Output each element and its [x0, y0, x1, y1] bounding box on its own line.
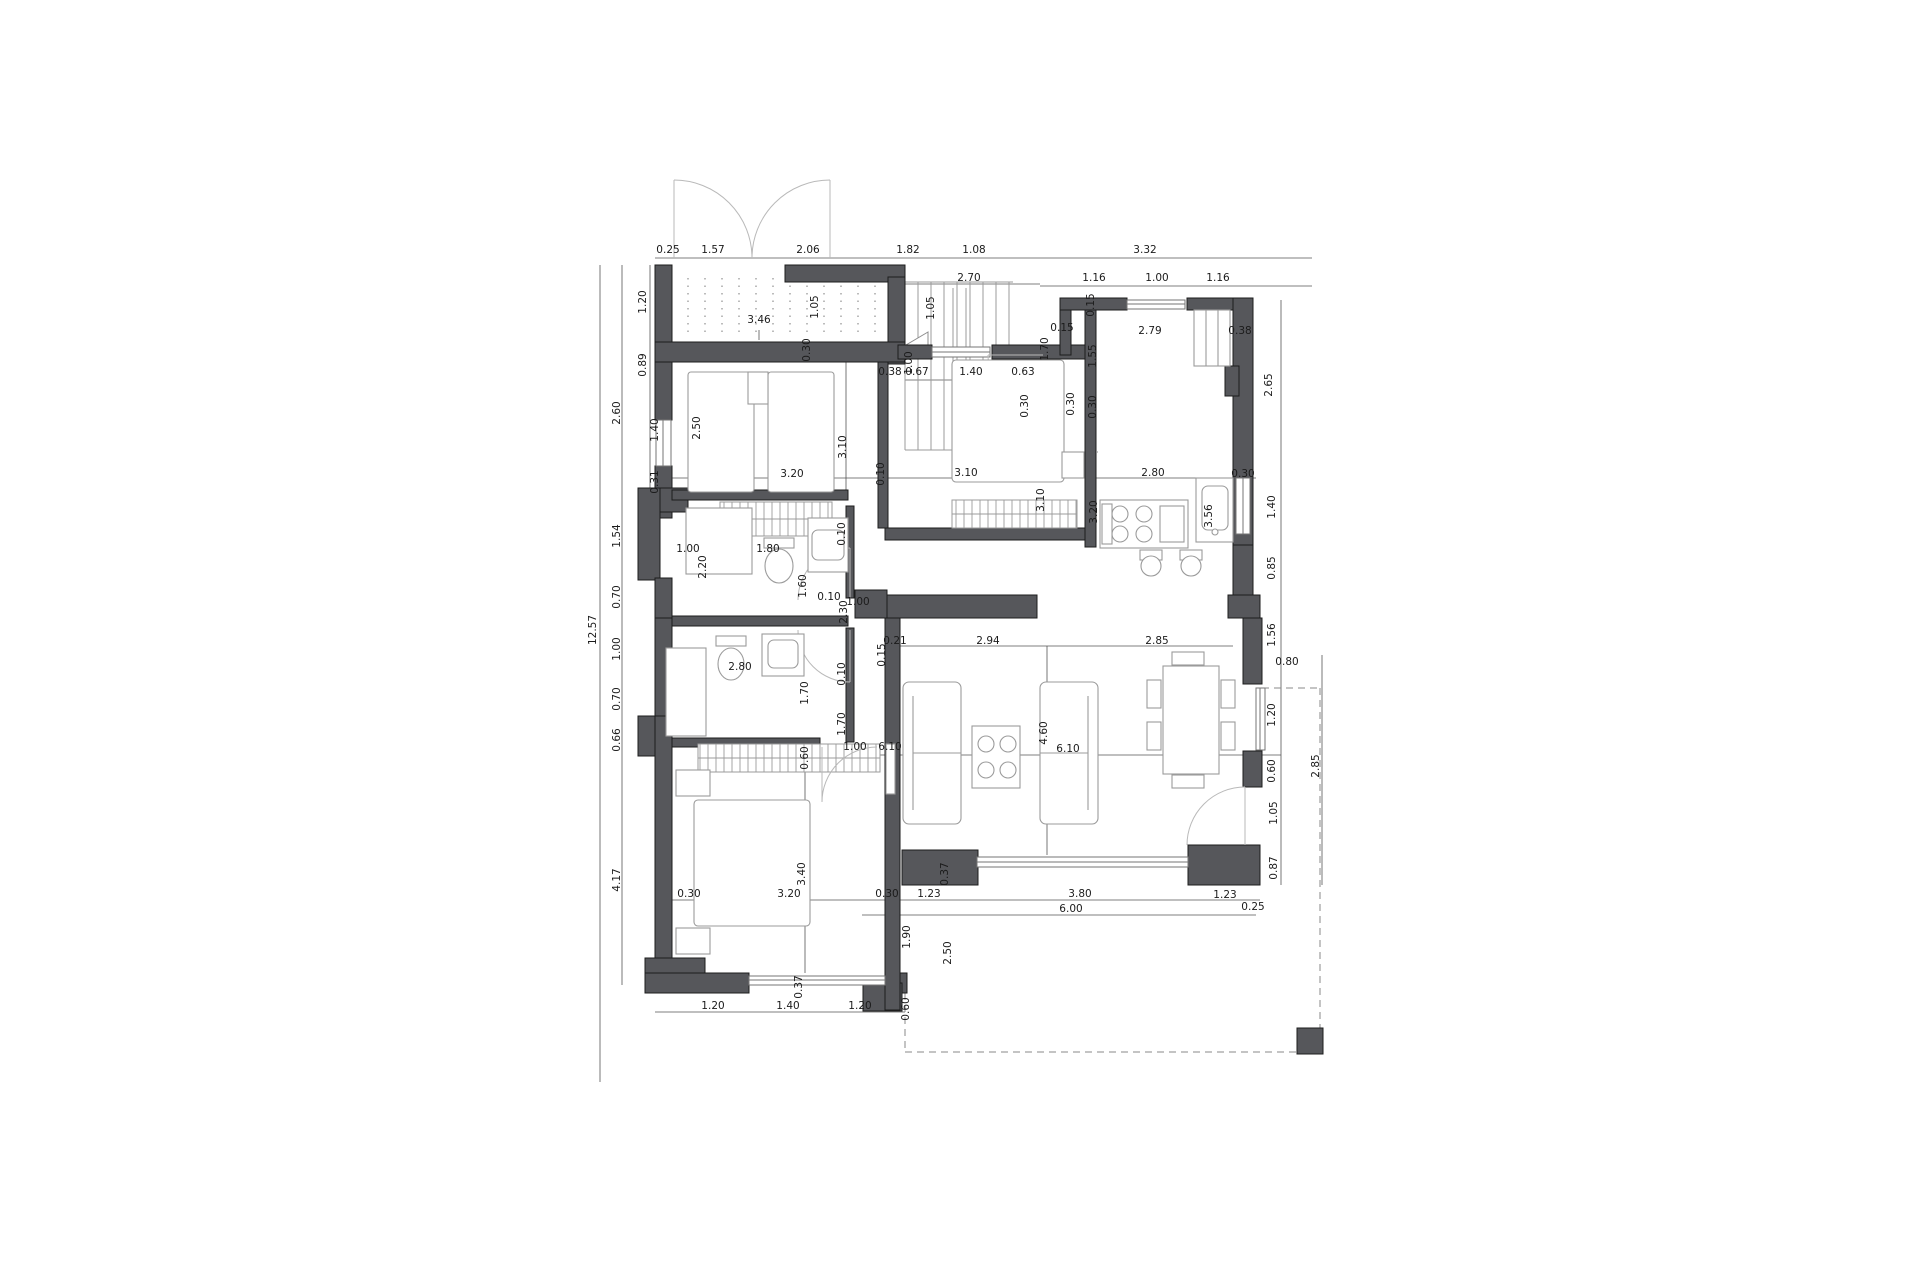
dimension-label: 0.30	[1019, 394, 1031, 417]
shower	[666, 648, 706, 736]
dimension-label: 0.60	[1266, 759, 1278, 782]
sink	[768, 640, 798, 668]
dimension-label: 0.30	[875, 888, 898, 900]
cabinet	[1194, 310, 1230, 366]
dimension-label: 0.10	[836, 522, 848, 545]
dimension-label: 0.15	[1050, 322, 1073, 334]
nightstand	[748, 372, 768, 404]
dimension-label: 2.85	[1310, 754, 1322, 777]
dimension-label: 0.38	[878, 366, 901, 378]
dimension-label: 1.05	[1268, 801, 1280, 824]
dimension-label: 0.70	[611, 687, 623, 710]
toilet	[716, 636, 746, 646]
dimension-label: 2.80	[728, 661, 751, 673]
dimension-label: 2.20	[697, 555, 709, 578]
dimension-label: 0.70	[611, 585, 623, 608]
dimension-label: 6.00	[1059, 903, 1082, 915]
dimension-label: 0.38	[1228, 325, 1251, 337]
dimension-label: 1.70	[799, 681, 811, 704]
dining-table	[1163, 666, 1219, 774]
dimension-label: 1.00	[611, 637, 623, 660]
dimension-label: 1.40	[1266, 495, 1278, 518]
dimension-label: 6.10	[878, 741, 901, 753]
dimension-label: 2.70	[957, 272, 980, 284]
dimension-label: 2.94	[976, 635, 1000, 647]
dimension-label: 1.16	[1082, 272, 1106, 284]
dimension-label: 0.60	[900, 997, 912, 1020]
dimension-label: 1.40	[959, 366, 982, 378]
dimension-label: 3.20	[1088, 500, 1100, 523]
dimension-label: 0.30	[1065, 392, 1077, 415]
dimension-label: 1.08	[962, 244, 985, 256]
dimension-label: 1.00	[843, 741, 866, 753]
dimension-label: 3.32	[1133, 244, 1156, 256]
dimension-label: 0.67	[905, 366, 928, 378]
dimension-label: 3.46	[747, 314, 771, 326]
dimension-label: 2.50	[691, 416, 703, 439]
dimension-label: 0.66	[611, 728, 623, 752]
floor-plan-page: 0.251.572.061.821.083.322.701.161.001.16…	[0, 0, 1920, 1280]
dimension-label: 0.60	[799, 746, 811, 769]
nightstand	[676, 928, 710, 954]
coffee-table	[972, 726, 1020, 788]
dimension-label: 0.10	[875, 462, 887, 485]
dimension-label: 1.70	[1039, 337, 1051, 360]
porch-dotted-texture	[688, 278, 875, 338]
floor-plan-drawing: 0.251.572.061.821.083.322.701.161.001.16…	[0, 0, 1920, 1280]
dimension-label: 0.30	[677, 888, 700, 900]
dimension-label: 1.00	[1145, 272, 1168, 284]
dimension-label: 2.80	[1141, 467, 1164, 479]
nightstand	[1062, 452, 1084, 478]
dimension-label: 0.80	[1275, 656, 1298, 668]
dimension-label: 1.90	[901, 925, 913, 948]
dimension-label: 1.40	[649, 418, 661, 441]
dimension-label: 3.20	[780, 468, 803, 480]
dimension-label: 1.05	[925, 296, 937, 319]
dimension-label: 1.20	[1266, 703, 1278, 726]
dimension-label: 2.79	[1138, 325, 1161, 337]
dimension-label: 0.15	[1085, 293, 1097, 316]
dimension-label: 3.20	[777, 888, 800, 900]
dimension-label: 0.85	[1266, 556, 1278, 579]
dimension-label: 3.10	[954, 467, 977, 479]
dimension-label: 1.00	[676, 543, 699, 555]
chair	[1147, 680, 1161, 708]
dimension-label: 0.37	[793, 975, 805, 998]
dimension-label: 1.80	[756, 543, 779, 555]
oven	[1160, 506, 1184, 542]
dimension-label: 1.70	[836, 712, 848, 735]
dimension-label: 3.40	[796, 862, 808, 885]
dimension-label: 4.17	[611, 868, 623, 891]
chair	[1221, 680, 1235, 708]
dimension-label: 0.30	[1231, 468, 1254, 480]
dimension-label: 1.20	[848, 1000, 871, 1012]
dimension-label: 1.60	[797, 574, 809, 597]
dimension-label: 1.82	[896, 244, 919, 256]
dimension-label: 0.15	[876, 643, 888, 666]
stool	[1181, 556, 1201, 576]
dimension-label: 0.30	[1087, 395, 1099, 418]
dimension-label: 2.30	[838, 600, 850, 623]
dimension-label: 2.85	[1145, 635, 1168, 647]
dimension-label: 3.10	[837, 435, 849, 458]
dimension-label: 1.20	[637, 290, 649, 313]
chair	[1147, 722, 1161, 750]
stool	[1141, 556, 1161, 576]
dimension-label: 2.50	[942, 941, 954, 964]
dimension-label: 3.56	[1203, 504, 1215, 528]
dimension-label: 12.57	[587, 615, 599, 645]
dimension-label: 0.87	[1268, 856, 1280, 879]
dimension-label: 1.05	[809, 295, 821, 318]
dimension-label: 1.55	[1087, 344, 1099, 367]
dimension-label: 1.56	[1266, 623, 1278, 647]
dimension-label: 2.06	[796, 244, 820, 256]
dimension-label: 0.10	[836, 662, 848, 685]
bed	[694, 800, 810, 926]
shower	[686, 508, 752, 574]
dimension-label: 3.80	[1068, 888, 1091, 900]
dimension-label: 1.23	[917, 888, 940, 900]
chair	[1172, 652, 1204, 665]
dimension-label: 4.60	[1038, 721, 1050, 744]
bed	[952, 360, 1064, 482]
dimension-label: 3.10	[1035, 488, 1047, 511]
nightstand	[676, 770, 710, 796]
dimension-label: 0.30	[801, 338, 813, 361]
dimension-label: 1.16	[1206, 272, 1230, 284]
dimension-label: 0.25	[1241, 901, 1264, 913]
dimension-label: 0.89	[637, 353, 649, 376]
dimension-label: 0.37	[939, 862, 951, 885]
dimension-label: 1.20	[701, 1000, 724, 1012]
chair	[1221, 722, 1235, 750]
dimension-label: 1.57	[701, 244, 724, 256]
dimension-label: 6.10	[1056, 743, 1079, 755]
dimension-label: 1.40	[776, 1000, 799, 1012]
dimension-label: 2.60	[611, 401, 623, 424]
chair	[1172, 775, 1204, 788]
dimension-label: 1.23	[1213, 889, 1236, 901]
dimension-label: 0.25	[656, 244, 679, 256]
dimension-label: 0.31	[649, 470, 661, 493]
dimension-label: 1.54	[611, 524, 623, 548]
dimension-label: 2.65	[1263, 373, 1275, 396]
dimension-label: 0.63	[1011, 366, 1034, 378]
